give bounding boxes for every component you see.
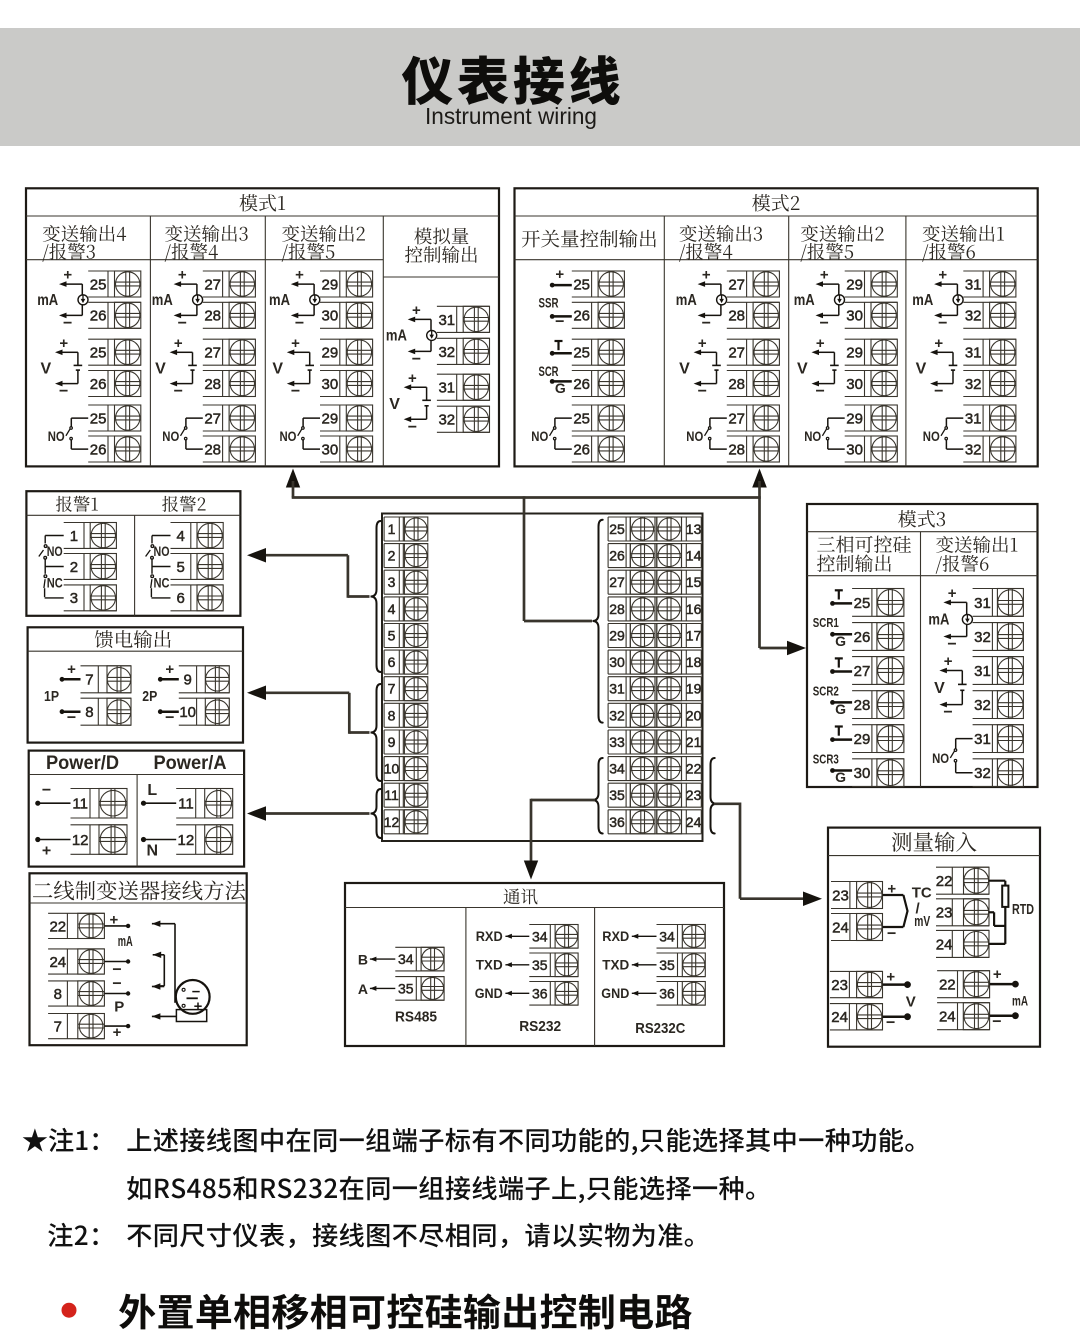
svg-text:+: + xyxy=(110,912,119,929)
svg-text:+: + xyxy=(816,335,825,352)
svg-text:35: 35 xyxy=(609,787,625,803)
svg-text:27: 27 xyxy=(728,410,745,427)
svg-text:31: 31 xyxy=(965,410,982,427)
svg-text:+: + xyxy=(67,661,76,678)
svg-text:29: 29 xyxy=(322,410,339,427)
svg-text:26: 26 xyxy=(90,308,107,325)
svg-text:30: 30 xyxy=(322,308,339,325)
svg-text:RS485: RS485 xyxy=(395,1008,437,1025)
svg-text:V: V xyxy=(916,361,927,378)
svg-text:29: 29 xyxy=(322,345,339,362)
svg-text:4: 4 xyxy=(388,601,396,617)
svg-text:32: 32 xyxy=(974,629,991,646)
svg-text:25: 25 xyxy=(573,410,590,427)
svg-text:32: 32 xyxy=(438,344,455,361)
svg-text:2P: 2P xyxy=(142,688,157,705)
svg-text:TC: TC xyxy=(912,885,932,902)
svg-text:32: 32 xyxy=(965,308,982,325)
svg-text:7: 7 xyxy=(54,1019,62,1036)
svg-text:GND: GND xyxy=(601,986,629,1001)
svg-text:+: + xyxy=(993,966,1002,983)
svg-text:30: 30 xyxy=(846,308,863,325)
svg-text:NC: NC xyxy=(47,576,63,591)
svg-text:27: 27 xyxy=(854,663,871,680)
svg-text:23: 23 xyxy=(936,905,953,922)
svg-text:+: + xyxy=(63,267,72,284)
svg-text:33: 33 xyxy=(609,734,625,750)
svg-text:−: − xyxy=(112,976,121,993)
svg-text:+: + xyxy=(291,335,300,352)
svg-text:31: 31 xyxy=(609,681,625,697)
svg-text:−: − xyxy=(947,636,956,653)
svg-text:+: + xyxy=(948,585,957,602)
svg-text:30: 30 xyxy=(322,376,339,393)
svg-text:32: 32 xyxy=(974,697,991,714)
svg-text:22: 22 xyxy=(686,761,702,777)
svg-text:22: 22 xyxy=(936,873,953,890)
svg-text:27: 27 xyxy=(204,410,221,427)
svg-text:5: 5 xyxy=(177,559,185,576)
svg-text:28: 28 xyxy=(609,601,625,617)
svg-text:30: 30 xyxy=(322,441,339,458)
svg-text:24: 24 xyxy=(686,814,702,830)
svg-text:+: + xyxy=(42,843,51,860)
svg-text:mA: mA xyxy=(118,933,133,950)
svg-text:mA: mA xyxy=(37,292,58,309)
svg-text:−: − xyxy=(178,315,187,332)
svg-text:−: − xyxy=(174,383,183,400)
svg-text:28: 28 xyxy=(204,308,221,325)
svg-text:−: − xyxy=(412,351,421,368)
svg-text:NO: NO xyxy=(154,544,170,559)
svg-text:26: 26 xyxy=(573,308,590,325)
svg-text:29: 29 xyxy=(846,345,863,362)
svg-text:17: 17 xyxy=(686,628,702,644)
svg-text:7: 7 xyxy=(85,672,93,689)
svg-text:7: 7 xyxy=(388,681,396,697)
svg-text:−: − xyxy=(555,313,564,330)
svg-text:31: 31 xyxy=(965,345,982,362)
svg-text:mA: mA xyxy=(912,292,933,309)
svg-text:V: V xyxy=(679,361,690,378)
svg-text:mA: mA xyxy=(152,292,173,309)
svg-text:26: 26 xyxy=(90,376,107,393)
svg-text:G: G xyxy=(835,769,846,785)
svg-text:−: − xyxy=(702,315,711,332)
svg-text:31: 31 xyxy=(438,312,455,329)
svg-text:−: − xyxy=(886,1015,895,1032)
svg-text:−: − xyxy=(698,383,707,400)
svg-text:35: 35 xyxy=(532,957,548,973)
svg-text:−: − xyxy=(67,710,76,727)
svg-text:8: 8 xyxy=(54,986,62,1003)
svg-text:−: − xyxy=(59,383,68,400)
svg-text:V: V xyxy=(906,993,916,1010)
svg-text:21: 21 xyxy=(686,734,702,750)
svg-text:28: 28 xyxy=(728,376,745,393)
svg-text:32: 32 xyxy=(974,765,991,782)
svg-text:+: + xyxy=(886,969,895,986)
svg-text:36: 36 xyxy=(532,985,548,1001)
svg-text:L: L xyxy=(147,782,157,799)
svg-text:Power/D: Power/D xyxy=(46,753,119,774)
svg-text:+: + xyxy=(887,881,896,898)
svg-text:25: 25 xyxy=(609,521,625,537)
svg-text:−: − xyxy=(408,419,417,436)
svg-text:31: 31 xyxy=(974,731,991,748)
svg-text:+: + xyxy=(702,267,711,284)
svg-text:6: 6 xyxy=(388,654,396,670)
svg-text:25: 25 xyxy=(854,595,871,612)
svg-text:V: V xyxy=(389,396,400,413)
svg-text:SCR1: SCR1 xyxy=(813,615,839,630)
svg-text:+: + xyxy=(408,370,417,387)
svg-text:mA: mA xyxy=(676,292,697,309)
svg-text:24: 24 xyxy=(832,919,849,936)
svg-text:3: 3 xyxy=(388,574,396,590)
svg-text:35: 35 xyxy=(659,957,675,973)
svg-text:18: 18 xyxy=(686,654,702,670)
svg-text:RXD: RXD xyxy=(602,929,629,944)
svg-text:+: + xyxy=(938,267,947,284)
svg-text:22: 22 xyxy=(49,918,66,935)
svg-text:NO: NO xyxy=(804,428,821,444)
svg-text:13: 13 xyxy=(686,521,702,537)
svg-text:G: G xyxy=(835,633,846,649)
svg-text:NO: NO xyxy=(531,428,548,444)
svg-text:5: 5 xyxy=(388,628,396,644)
svg-text:SSR: SSR xyxy=(539,295,559,311)
svg-text:G: G xyxy=(555,380,566,396)
svg-text:32: 32 xyxy=(965,441,982,458)
svg-text:1P: 1P xyxy=(44,688,59,705)
svg-text:30: 30 xyxy=(854,765,871,782)
svg-text:34: 34 xyxy=(609,761,625,777)
svg-text:−: − xyxy=(992,1014,1001,1031)
svg-text:mA: mA xyxy=(928,611,949,628)
svg-text:+: + xyxy=(295,267,304,284)
svg-text:27: 27 xyxy=(728,276,745,293)
svg-text:22: 22 xyxy=(939,977,956,994)
svg-text:TXD: TXD xyxy=(476,958,503,973)
svg-text:26: 26 xyxy=(90,441,107,458)
svg-text:+: + xyxy=(178,267,187,284)
svg-text:V: V xyxy=(41,361,52,378)
svg-text:NO: NO xyxy=(47,544,63,559)
svg-text:−: − xyxy=(816,383,825,400)
svg-text:SCR3: SCR3 xyxy=(813,752,839,767)
svg-text:36: 36 xyxy=(659,985,675,1001)
svg-text:19: 19 xyxy=(686,681,702,697)
svg-text:34: 34 xyxy=(659,928,675,944)
svg-text:TXD: TXD xyxy=(602,958,629,973)
svg-text:SCR2: SCR2 xyxy=(813,683,839,698)
svg-text:34: 34 xyxy=(532,928,548,944)
svg-text:G: G xyxy=(835,701,846,717)
svg-text:+: + xyxy=(934,335,943,352)
svg-text:NO: NO xyxy=(923,428,940,444)
svg-text:mA: mA xyxy=(386,327,407,344)
svg-text:1: 1 xyxy=(70,528,78,545)
svg-text:NO: NO xyxy=(932,750,949,766)
svg-text:27: 27 xyxy=(204,345,221,362)
svg-text:SCR: SCR xyxy=(539,363,559,379)
svg-text:26: 26 xyxy=(573,376,590,393)
svg-text:26: 26 xyxy=(573,441,590,458)
svg-text:NO: NO xyxy=(686,428,703,444)
svg-text:32: 32 xyxy=(609,707,625,723)
svg-text:V: V xyxy=(934,680,945,697)
svg-text:−: − xyxy=(943,704,952,721)
svg-text:−: − xyxy=(291,383,300,400)
svg-text:30: 30 xyxy=(609,654,625,670)
svg-text:V: V xyxy=(797,361,808,378)
svg-text:N: N xyxy=(147,843,159,860)
svg-text:27: 27 xyxy=(204,276,221,293)
svg-text:10: 10 xyxy=(384,761,400,777)
svg-text:24: 24 xyxy=(939,1009,956,1026)
svg-text:GND: GND xyxy=(475,986,503,1001)
svg-text:+: + xyxy=(412,302,421,319)
svg-text:28: 28 xyxy=(728,441,745,458)
svg-text:31: 31 xyxy=(974,595,991,612)
svg-text:NC: NC xyxy=(154,576,170,591)
svg-text:29: 29 xyxy=(322,276,339,293)
svg-text:10: 10 xyxy=(179,704,196,721)
svg-text:−: − xyxy=(887,926,896,943)
svg-text:23: 23 xyxy=(832,887,849,904)
svg-text:3: 3 xyxy=(70,590,78,607)
svg-text:25: 25 xyxy=(573,276,590,293)
svg-text:30: 30 xyxy=(846,376,863,393)
svg-text:29: 29 xyxy=(846,410,863,427)
svg-text:+: + xyxy=(165,661,174,678)
svg-text:4: 4 xyxy=(177,528,185,545)
svg-text:12: 12 xyxy=(384,814,400,830)
svg-text:26: 26 xyxy=(609,548,625,564)
svg-text:12: 12 xyxy=(178,832,195,849)
svg-text:−: − xyxy=(938,315,947,332)
svg-text:−: − xyxy=(820,315,829,332)
svg-text:−: − xyxy=(934,383,943,400)
svg-text:+: + xyxy=(59,335,68,352)
svg-text:23: 23 xyxy=(686,787,702,803)
svg-text:+: + xyxy=(555,266,564,283)
svg-text:16: 16 xyxy=(686,601,702,617)
svg-text:−: − xyxy=(42,782,51,799)
svg-text:34: 34 xyxy=(398,951,414,967)
svg-text:24: 24 xyxy=(831,1009,848,1026)
svg-text:20: 20 xyxy=(686,707,702,723)
svg-text:36: 36 xyxy=(609,814,625,830)
svg-text:Instrument wiring: Instrument wiring xyxy=(425,103,597,129)
svg-text:28: 28 xyxy=(728,308,745,325)
svg-text:−: − xyxy=(63,315,72,332)
svg-text:−: − xyxy=(295,315,304,332)
svg-text:−: − xyxy=(165,710,174,727)
svg-text:mA: mA xyxy=(1012,993,1028,1008)
svg-text:31: 31 xyxy=(974,663,991,680)
svg-text:25: 25 xyxy=(90,276,107,293)
svg-text:35: 35 xyxy=(398,980,414,996)
svg-text:11: 11 xyxy=(72,796,88,813)
svg-text:RXD: RXD xyxy=(476,929,503,944)
svg-text:+: + xyxy=(944,653,953,670)
svg-text:P: P xyxy=(114,998,124,1015)
svg-text:28: 28 xyxy=(854,697,871,714)
svg-text:RTD: RTD xyxy=(1012,901,1034,918)
svg-text:9: 9 xyxy=(388,734,396,750)
svg-text:26: 26 xyxy=(854,629,871,646)
svg-text:30: 30 xyxy=(846,441,863,458)
svg-text:1: 1 xyxy=(388,521,396,537)
svg-text:31: 31 xyxy=(438,380,455,397)
svg-text:23: 23 xyxy=(831,977,848,994)
svg-text:32: 32 xyxy=(438,412,455,429)
svg-text:28: 28 xyxy=(204,376,221,393)
svg-text:+: + xyxy=(698,335,707,352)
svg-text:mA: mA xyxy=(269,292,290,309)
svg-text:+: + xyxy=(113,1024,122,1041)
svg-text:11: 11 xyxy=(178,796,194,813)
svg-text:25: 25 xyxy=(90,345,107,362)
svg-text:RS232C: RS232C xyxy=(635,1020,685,1037)
svg-text:12: 12 xyxy=(72,832,89,849)
svg-text:29: 29 xyxy=(609,628,625,644)
svg-text:V: V xyxy=(155,361,166,378)
svg-text:NO: NO xyxy=(162,428,179,444)
svg-text:25: 25 xyxy=(573,345,590,362)
svg-text:11: 11 xyxy=(384,787,399,803)
svg-text:9: 9 xyxy=(184,672,192,689)
svg-text:6: 6 xyxy=(177,590,185,607)
svg-text:8: 8 xyxy=(388,707,396,723)
svg-text:NO: NO xyxy=(280,428,297,444)
svg-text:29: 29 xyxy=(846,276,863,293)
svg-text:14: 14 xyxy=(686,548,702,564)
svg-text:RS232: RS232 xyxy=(519,1018,561,1035)
svg-text:8: 8 xyxy=(85,704,93,721)
svg-text:27: 27 xyxy=(728,345,745,362)
svg-text:V: V xyxy=(272,361,283,378)
svg-text:mA: mA xyxy=(794,292,815,309)
svg-text:29: 29 xyxy=(854,731,871,748)
svg-text:A: A xyxy=(358,981,368,997)
svg-text:2: 2 xyxy=(388,548,396,564)
svg-text:+: + xyxy=(820,267,829,284)
svg-text:27: 27 xyxy=(609,574,625,590)
svg-text:32: 32 xyxy=(965,376,982,393)
svg-text:+: + xyxy=(174,335,183,352)
svg-text:31: 31 xyxy=(965,276,982,293)
svg-text:2: 2 xyxy=(70,559,78,576)
svg-text:24: 24 xyxy=(49,954,66,971)
svg-text:Power/A: Power/A xyxy=(154,753,227,774)
svg-text:NO: NO xyxy=(48,428,65,444)
svg-text:15: 15 xyxy=(686,574,702,590)
svg-text:B: B xyxy=(358,952,368,968)
svg-text:28: 28 xyxy=(204,441,221,458)
svg-text:24: 24 xyxy=(936,936,953,953)
svg-text:25: 25 xyxy=(90,410,107,427)
svg-text:mV: mV xyxy=(914,914,930,930)
